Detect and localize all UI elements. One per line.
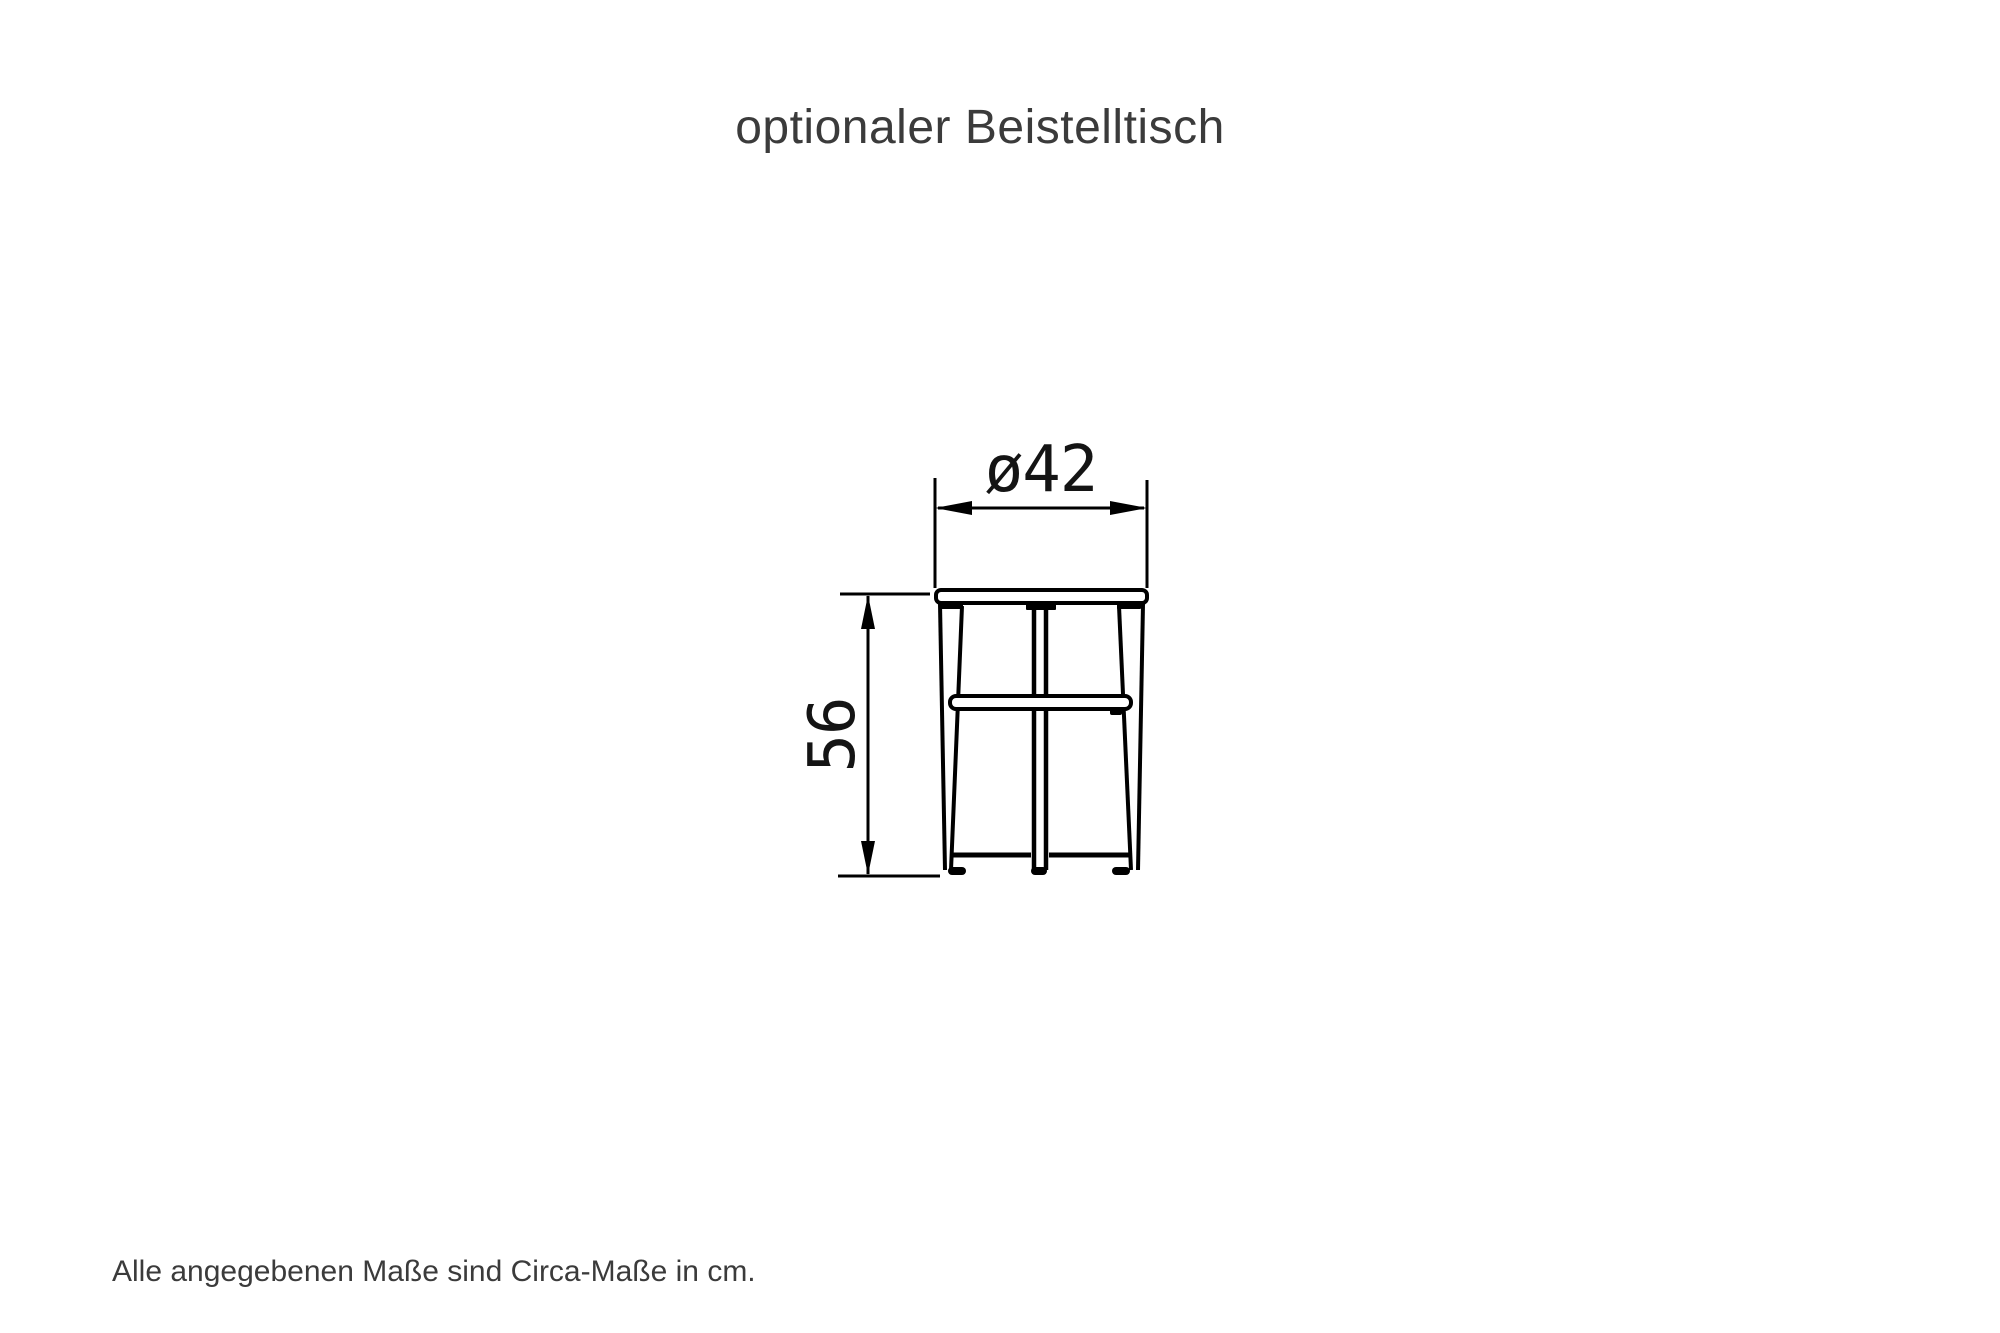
diameter-arrow-left-icon: [935, 501, 972, 515]
diameter-arrow-right-icon: [1110, 501, 1147, 515]
right-foot: [1112, 867, 1130, 875]
diameter-dimension-label: ø42: [985, 438, 1098, 502]
mid-stretcher-joint: [1110, 708, 1122, 715]
right-leg-outer-edge: [1138, 604, 1143, 870]
left-leg-mount: [941, 602, 963, 609]
height-dimension-label: 56: [801, 697, 865, 772]
table-top: [936, 590, 1147, 603]
left-foot: [948, 867, 966, 875]
footer-note: Alle angegebenen Maße sind Circa-Maße in…: [112, 1255, 756, 1289]
height-arrow-bottom-icon: [861, 841, 875, 875]
side-table-drawing-canvas: [0, 0, 2000, 1333]
right-leg-inner-edge: [1119, 606, 1131, 870]
center-foot: [1031, 867, 1047, 875]
left-leg-outer-edge: [940, 604, 945, 870]
right-leg-mount: [1117, 602, 1141, 609]
side-table-figure: [936, 590, 1147, 875]
center-leg-mount: [1026, 602, 1056, 610]
left-leg-inner-edge: [951, 606, 962, 870]
mid-stretcher: [950, 696, 1131, 709]
height-arrow-top-icon: [861, 595, 875, 629]
